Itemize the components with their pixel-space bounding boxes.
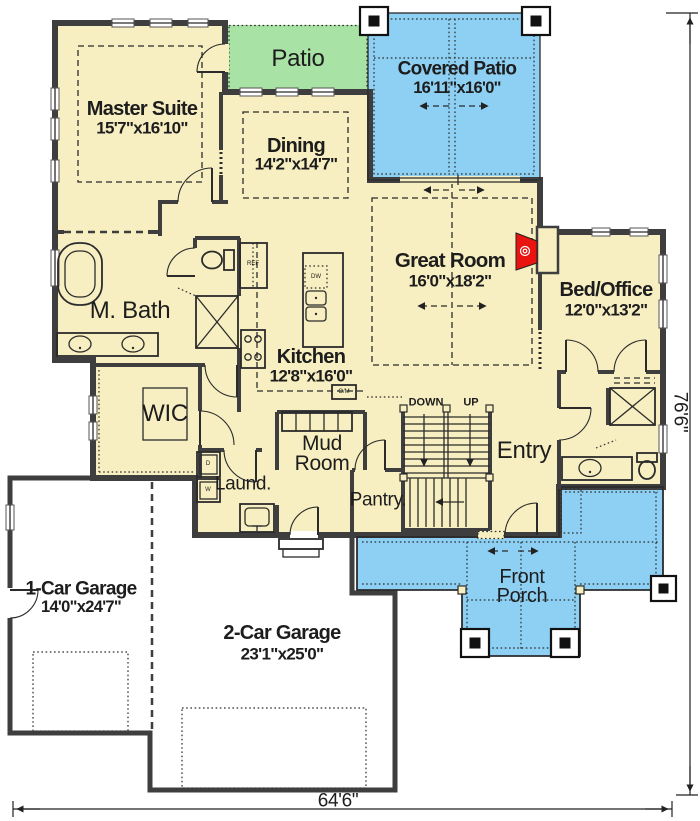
dims-1-car-garage: 14'0"x24'7"	[41, 599, 121, 616]
label-washer: W	[205, 487, 211, 493]
label-covered-patio: Covered Patio	[398, 60, 517, 79]
label-entry: Entry	[497, 439, 552, 463]
label-master-suite: Master Suite	[87, 99, 198, 119]
label-stairs-down: DOWN	[409, 398, 444, 409]
label-dining: Dining	[267, 136, 325, 156]
label-ref: REF	[247, 261, 259, 267]
dims-dining: 14'2"x14'7"	[255, 156, 338, 173]
label-1-car-garage: 1-Car Garage	[26, 580, 137, 599]
label-stairs-up: UP	[463, 398, 478, 409]
label-kitchen: Kitchen	[277, 347, 345, 367]
label-mud-room: Mud Room	[285, 434, 359, 474]
label-oven-micro: O/M	[338, 389, 349, 395]
label-m-bath: M. Bath	[90, 299, 171, 323]
dims-master-suite: 15'7"x16'10"	[96, 120, 187, 137]
dimension-height: 76'6"	[671, 392, 690, 433]
label-great-room: Great Room	[395, 251, 505, 272]
label-laundry: Laund.	[215, 475, 271, 494]
label-front-porch: Front Porch	[491, 568, 553, 606]
dims-bed-office: 12'0"x13'2"	[565, 302, 648, 319]
dims-kitchen: 12'8"x16'0"	[270, 368, 353, 385]
label-dw: DW	[311, 274, 321, 280]
dims-great-room: 16'0"x18'2"	[409, 273, 492, 290]
label-patio: Patio	[271, 47, 324, 71]
floor-plan: Master Suite 15'7"x16'10" Dining 14'2"x1…	[0, 0, 700, 821]
label-wic: WIC	[142, 402, 188, 426]
dims-2-car-garage: 23'1"x25'0"	[241, 646, 324, 663]
label-2-car-garage: 2-Car Garage	[223, 623, 340, 643]
label-bed-office: Bed/Office	[559, 280, 652, 300]
dims-covered-patio: 16'11"x16'0"	[413, 80, 501, 97]
label-pantry: Pantry.	[350, 491, 407, 510]
label-dryer: D	[206, 461, 210, 467]
sliding-door	[400, 175, 520, 185]
dimension-width: 64'6"	[318, 792, 359, 811]
